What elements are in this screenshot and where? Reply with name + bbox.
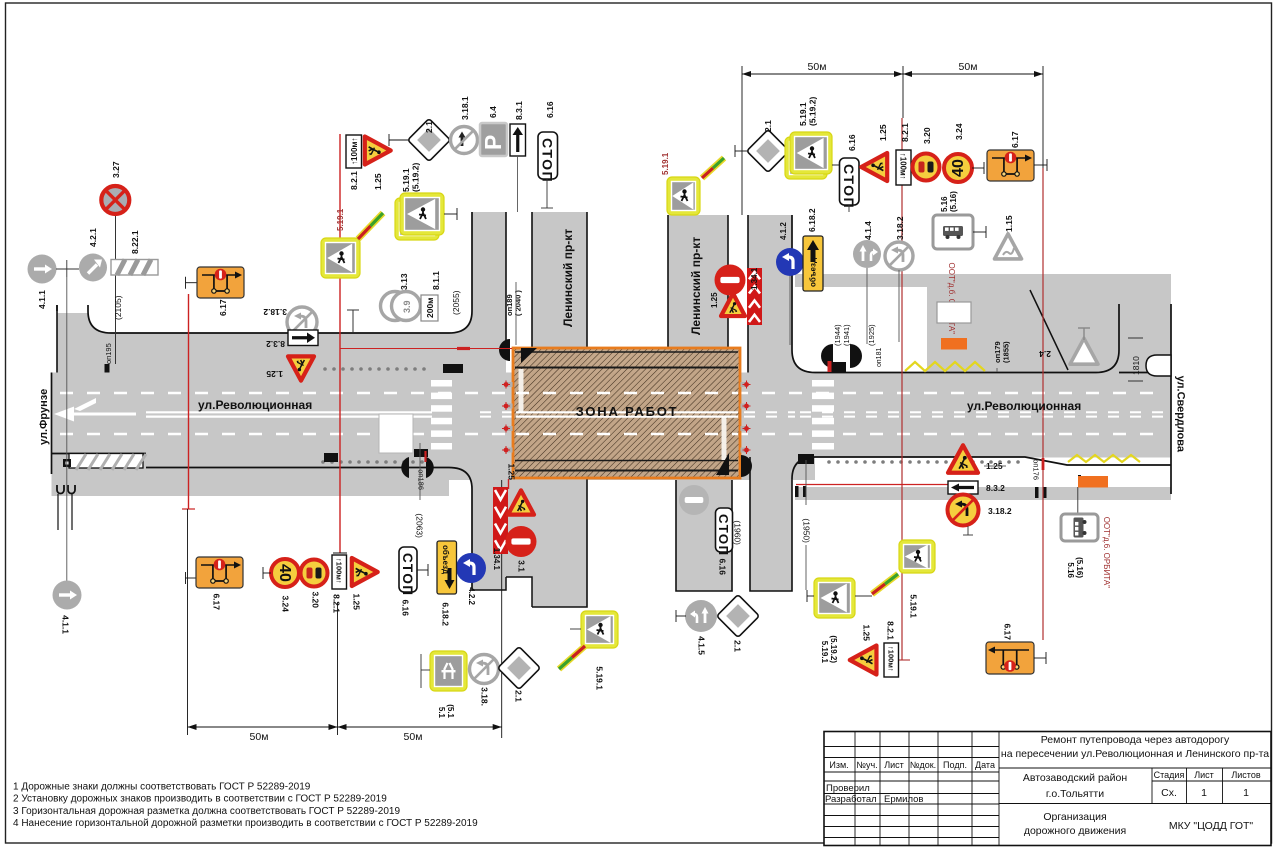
svg-text:Организация: Организация [1043, 811, 1106, 823]
svg-text:6.16: 6.16 [847, 134, 857, 151]
svg-text:5.16: 5.16 [940, 196, 949, 212]
svg-text:6.4: 6.4 [488, 106, 498, 118]
svg-text:1: 1 [1243, 787, 1249, 799]
svg-text:( 2040 ): ( 2040 ) [514, 290, 523, 316]
svg-text:Лист: Лист [1194, 770, 1214, 780]
svg-text:4.1.1: 4.1.1 [37, 290, 47, 309]
svg-text:1810: 1810 [1131, 356, 1141, 375]
svg-text:Разработал: Разработал [825, 794, 877, 805]
svg-text:на пересечении ул.Революционна: на пересечении ул.Революционная и Ленинс… [1001, 748, 1269, 760]
svg-text:50м: 50м [404, 731, 423, 743]
svg-text:6.16: 6.16 [718, 558, 728, 575]
svg-text:1 Дорожные знаки должны соотве: 1 Дорожные знаки должны соответствовать … [13, 782, 311, 793]
svg-text:(1855): (1855) [1002, 341, 1011, 363]
svg-text:5.19.1: 5.19.1 [661, 152, 670, 175]
svg-text:(5.1: (5.1 [446, 704, 455, 718]
svg-text:6.17: 6.17 [1010, 131, 1020, 148]
svg-text:(1925): (1925) [867, 324, 876, 346]
svg-text:3.18.: 3.18. [480, 687, 490, 706]
svg-text:1.34.1: 1.34.1 [492, 548, 501, 571]
svg-text:8.22.1: 8.22.1 [130, 230, 140, 254]
svg-text:3.18.1: 3.18.1 [460, 96, 470, 120]
svg-text:дорожного движения: дорожного движения [1024, 825, 1126, 837]
svg-text:8.3.1: 8.3.1 [514, 101, 524, 120]
svg-text:(2105): (2105) [113, 295, 123, 320]
svg-text:ул.Свердлова: ул.Свердлова [1175, 376, 1187, 453]
svg-text:40: 40 [949, 159, 967, 177]
svg-text:1.25: 1.25 [878, 124, 888, 141]
svg-text:5.19.1: 5.19.1 [595, 666, 605, 690]
svg-text:оп186: оп186 [417, 469, 426, 490]
svg-text:(1941): (1941) [842, 324, 851, 346]
svg-text:1.25: 1.25 [710, 292, 719, 308]
svg-text:6.17: 6.17 [212, 593, 222, 610]
svg-text:50м: 50м [808, 61, 827, 73]
svg-text:5.16: 5.16 [1066, 562, 1075, 578]
svg-text:Ермилов: Ермилов [884, 794, 923, 805]
svg-text:50м: 50м [959, 61, 978, 73]
svg-text:СТОП: СТОП [400, 553, 415, 597]
svg-text:6.18.2: 6.18.2 [441, 602, 451, 626]
svg-text:1.25: 1.25 [373, 173, 383, 190]
svg-text:(5.16): (5.16) [949, 191, 958, 212]
svg-text:↑100м↑: ↑100м↑ [334, 558, 343, 584]
svg-text:2.1: 2.1 [514, 690, 524, 702]
svg-text:5.1: 5.1 [437, 707, 446, 719]
svg-text:ул.Революционная: ул.Революционная [198, 398, 312, 412]
svg-text:8.1.1: 8.1.1 [431, 271, 441, 290]
svg-text:1.34.1: 1.34.1 [750, 267, 759, 290]
svg-text:8.2.1: 8.2.1 [332, 594, 342, 613]
svg-text:3.18.2: 3.18.2 [988, 506, 1012, 516]
svg-text:1: 1 [1201, 787, 1207, 799]
svg-text:1.25: 1.25 [352, 593, 362, 610]
svg-text:2.1: 2.1 [763, 120, 773, 132]
svg-text:МКУ "ЦОДД ГОТ": МКУ "ЦОДД ГОТ" [1169, 820, 1254, 832]
svg-text:(5.19.2): (5.19.2) [411, 163, 421, 192]
svg-text:ул.Фрунзе: ул.Фрунзе [38, 389, 50, 445]
svg-text:6.16: 6.16 [401, 599, 411, 616]
svg-text:5.19.1: 5.19.1 [401, 168, 411, 192]
svg-text:5.19.1: 5.19.1 [798, 102, 808, 126]
svg-text:3.27: 3.27 [111, 161, 121, 178]
svg-text:№уч.: №уч. [856, 760, 877, 770]
svg-text:8.2.1: 8.2.1 [886, 621, 896, 640]
svg-text:5.19.1: 5.19.1 [909, 594, 919, 618]
svg-text:№док.: №док. [910, 760, 936, 770]
svg-text:2 Установку дорожных знаков пр: 2 Установку дорожных знаков производить … [13, 794, 387, 805]
svg-text:СТОП: СТОП [540, 138, 556, 183]
svg-text:↑100м↑: ↑100м↑ [899, 153, 908, 180]
svg-text:8.2.1: 8.2.1 [900, 123, 910, 142]
svg-text:Изм.: Изм. [829, 760, 848, 770]
svg-text:4.2.1: 4.2.1 [88, 228, 98, 247]
svg-text:4.1.1: 4.1.1 [61, 615, 71, 634]
svg-text:Стадия: Стадия [1154, 770, 1185, 780]
svg-text:3.1: 3.1 [517, 560, 527, 572]
svg-text:(5.19.2): (5.19.2) [829, 635, 838, 663]
svg-text:4.1.5: 4.1.5 [697, 636, 707, 655]
svg-text:3.24: 3.24 [281, 595, 291, 612]
svg-text:(1960): (1960) [733, 520, 743, 545]
svg-text:(2055): (2055) [451, 290, 461, 315]
svg-text:(1944): (1944) [833, 324, 842, 346]
svg-text:Ремонт путепровода через автод: Ремонт путепровода через автодорогу [1041, 734, 1230, 746]
svg-text:3.20: 3.20 [311, 591, 321, 608]
svg-text:Листов: Листов [1231, 770, 1260, 780]
svg-text:объезд: объезд [808, 258, 817, 287]
svg-text:СТОП: СТОП [716, 514, 731, 557]
svg-text:оп181: оп181 [876, 348, 883, 367]
svg-text:8.2.1: 8.2.1 [349, 171, 359, 190]
svg-text:1.25: 1.25 [507, 463, 517, 480]
svg-text:Ленинский пр-кт: Ленинский пр-кт [561, 229, 575, 327]
svg-text:Ленинский пр-кт: Ленинский пр-кт [689, 237, 703, 335]
svg-text:Подп.: Подп. [943, 760, 967, 770]
svg-text:3.20: 3.20 [922, 127, 932, 144]
svg-text:(5.16): (5.16) [1075, 557, 1084, 578]
svg-text:6.18.2: 6.18.2 [807, 208, 817, 232]
svg-text:г.о.Тольятти: г.о.Тольятти [1046, 788, 1104, 800]
svg-text:↑100м↑: ↑100м↑ [886, 646, 895, 672]
svg-text:2.1: 2.1 [424, 121, 434, 133]
svg-text:50м: 50м [250, 731, 269, 743]
svg-text:3.18.2: 3.18.2 [895, 216, 905, 240]
svg-text:4 Нанесение горизонтальной дор: 4 Нанесение горизонтальной дорожной разм… [13, 818, 478, 829]
svg-text:ул.Революционная: ул.Революционная [967, 399, 1081, 413]
svg-text:СТОП: СТОП [841, 164, 857, 209]
svg-text:ООТ"д.6. ОРБИТА": ООТ"д.6. ОРБИТА" [1102, 517, 1111, 588]
svg-text:5.19.1: 5.19.1 [820, 641, 829, 664]
svg-text:5.19.1: 5.19.1 [336, 208, 345, 231]
svg-text:3.18.2: 3.18.2 [263, 307, 287, 317]
svg-text:2.1: 2.1 [733, 640, 743, 652]
svg-text:4.2.2: 4.2.2 [467, 587, 476, 605]
svg-text:4.1.4: 4.1.4 [863, 221, 873, 240]
svg-text:(2063): (2063) [415, 513, 425, 538]
svg-text:6.17: 6.17 [218, 299, 228, 316]
svg-text:(5.19.2): (5.19.2) [808, 97, 818, 126]
svg-text:↑100м↑: ↑100м↑ [350, 138, 359, 165]
svg-text:1.15: 1.15 [1004, 215, 1014, 232]
svg-text:Лист: Лист [884, 760, 904, 770]
svg-text:Проверил: Проверил [826, 783, 870, 794]
svg-text:40: 40 [276, 564, 294, 582]
svg-text:P: P [480, 135, 506, 150]
svg-text:6.17: 6.17 [1003, 623, 1013, 640]
svg-text:Дата: Дата [975, 760, 995, 770]
svg-text:3.13: 3.13 [399, 273, 409, 290]
svg-text:8.3.2: 8.3.2 [986, 483, 1005, 493]
svg-text:200м: 200м [425, 298, 435, 318]
svg-text:3 Горизонтальная дорожная разм: 3 Горизонтальная дорожная разметка должн… [13, 806, 400, 817]
svg-text:2.4: 2.4 [1039, 349, 1051, 359]
svg-text:3.24: 3.24 [954, 123, 964, 140]
svg-text:ЗОНА РАБОТ: ЗОНА РАБОТ [576, 404, 679, 419]
svg-text:1.25: 1.25 [862, 624, 872, 641]
svg-text:оп176: оп176 [1032, 459, 1041, 480]
svg-text:Сх.: Сх. [1161, 787, 1177, 799]
svg-text:3.9: 3.9 [402, 300, 412, 313]
svg-text:6.16: 6.16 [545, 101, 555, 118]
svg-text:8.3.2: 8.3.2 [266, 339, 285, 349]
svg-text:4.1.2: 4.1.2 [779, 222, 788, 240]
svg-text:1.25: 1.25 [266, 369, 283, 379]
svg-text:Автозаводский район: Автозаводский район [1023, 772, 1127, 784]
svg-text:оп195: оп195 [104, 343, 113, 364]
svg-text:(1950): (1950) [802, 518, 812, 543]
